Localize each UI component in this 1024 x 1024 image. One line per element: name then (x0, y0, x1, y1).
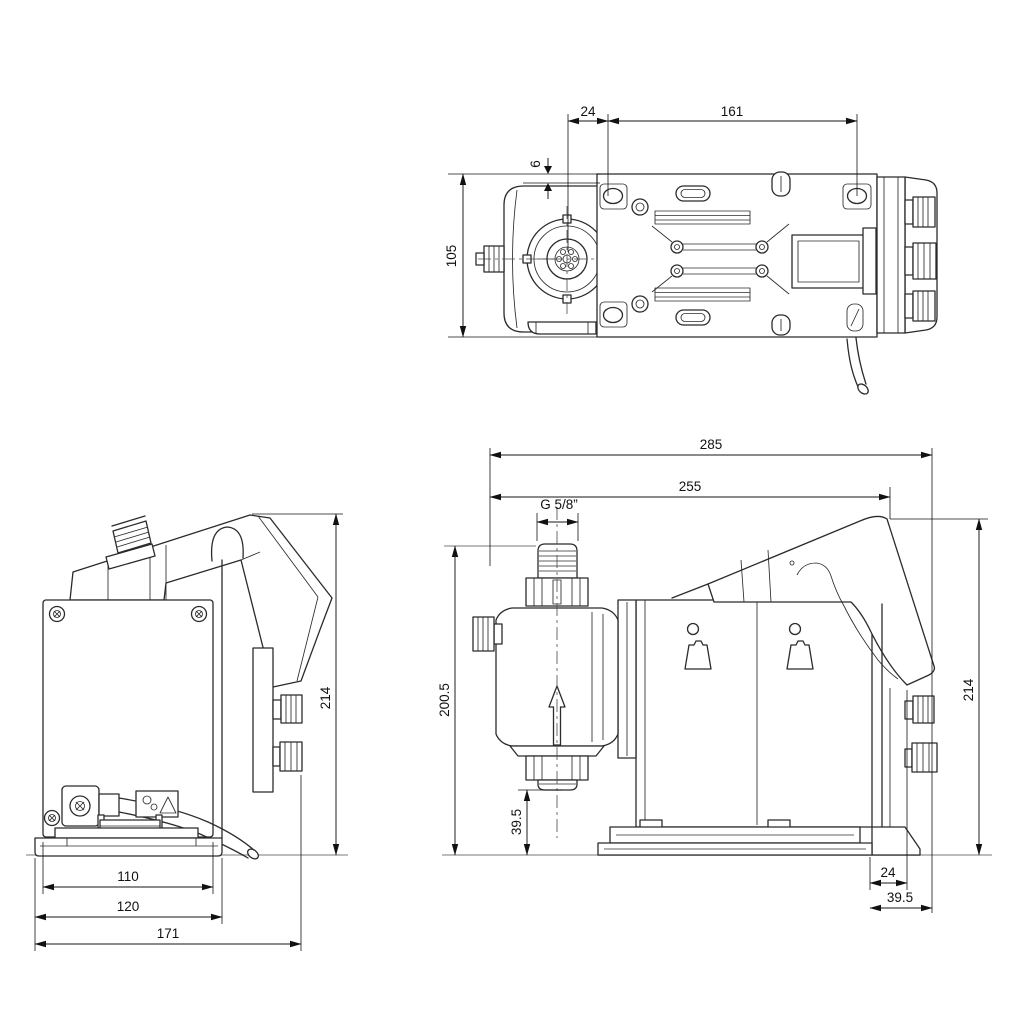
back-view-knob-1 (273, 695, 302, 723)
dim-label-39-5-rear: 39.5 (887, 890, 913, 905)
top-view-knob-2 (905, 243, 936, 279)
back-view-knob-2 (273, 742, 302, 771)
plate-screw-bl (45, 811, 60, 826)
dim-label-39-5-left: 39.5 (509, 809, 524, 835)
top-view-cable (847, 338, 870, 396)
top-view: 24 161 6 105 (444, 104, 937, 396)
plate-screw-tr (192, 607, 207, 622)
outlet-thread (538, 780, 577, 790)
side-view-dosing-head (473, 507, 636, 838)
thread-size-label: G 5/8” (540, 497, 578, 512)
warning-label (136, 791, 178, 817)
dim-label-200-5: 200.5 (437, 683, 452, 717)
back-view: 214 110 120 171 (26, 514, 348, 951)
plate-screw-tl (50, 607, 65, 622)
top-view-knob-1 (905, 197, 935, 227)
top-view-knob-3 (905, 291, 935, 321)
dim-label-24-rear: 24 (880, 865, 896, 880)
dim-label-161: 161 (721, 104, 744, 119)
side-view: 285 255 G 5/8” 200.5 39.5 214 24 (437, 437, 992, 913)
dim-label-6: 6 (528, 160, 543, 168)
dim-label-110: 110 (117, 869, 139, 884)
dim-label-105: 105 (444, 245, 459, 268)
side-view-knob-1 (905, 696, 934, 723)
dim-label-171: 171 (157, 926, 180, 941)
dim-label-24-top: 24 (580, 104, 596, 119)
back-view-base (35, 828, 222, 856)
dim-label-285: 285 (700, 437, 723, 452)
drawing-page: 24 161 6 105 (0, 0, 1024, 1024)
dim-label-214-back: 214 (318, 686, 333, 709)
top-view-baseplate (597, 172, 877, 337)
side-view-body (636, 600, 872, 827)
dim-label-120: 120 (117, 899, 140, 914)
dim-label-214-side: 214 (961, 678, 976, 701)
pump-dimensional-drawing: 24 161 6 105 (0, 0, 1024, 1024)
cable-plug (99, 794, 119, 816)
dim-label-255: 255 (679, 479, 702, 494)
